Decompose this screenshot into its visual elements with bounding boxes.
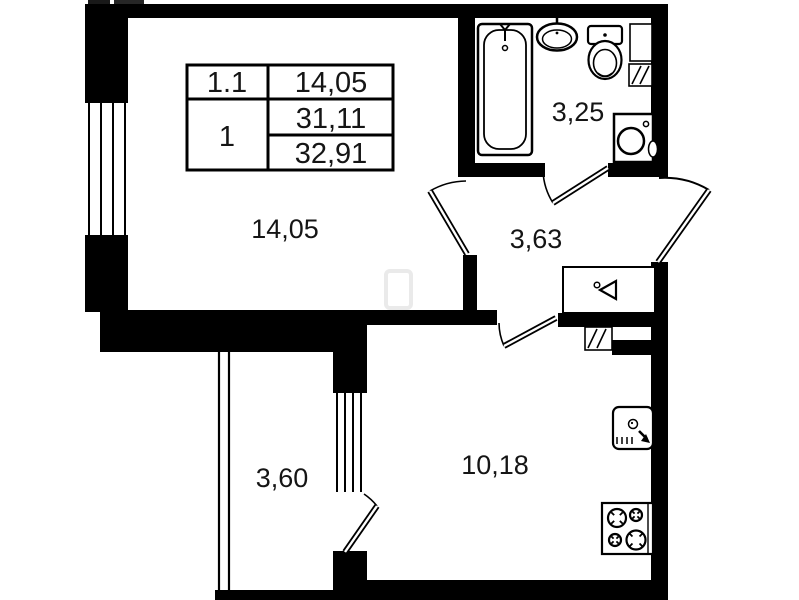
entrance-door (658, 178, 709, 262)
floor-plan-drawing: 1.1 14,05 1 31,11 32,91 14,05 3,25 3,63 … (0, 0, 799, 600)
wall-living-kitchen-partition (367, 310, 497, 325)
wall-bathroom-bottom-right (608, 163, 668, 177)
balcony-glazing-wall (219, 352, 229, 592)
duct-niche (630, 24, 652, 61)
balcony-door (345, 494, 377, 552)
room-label-hallway: 3,63 (510, 224, 563, 254)
wall-bottom-kitchen (333, 580, 668, 600)
wardrobe (563, 267, 655, 313)
wall-vent-corner (612, 340, 668, 355)
kitchen-door (499, 318, 556, 346)
wall-top (85, 4, 668, 18)
ventilation-shaft-bathroom (629, 64, 652, 86)
wall-bathroom-bottom-left (458, 163, 545, 177)
table-cell-apartment-number: 1 (219, 121, 235, 153)
room-label-living: 14,05 (251, 214, 319, 244)
toilet-icon (588, 26, 622, 79)
table-cell-unit-area: 14,05 (295, 67, 368, 99)
wall-top-cut-mark (114, 0, 144, 4)
living-room-window (85, 103, 128, 235)
washbasin-icon (537, 16, 577, 51)
wall-balcony-bottom (215, 590, 333, 600)
room-label-kitchen: 10,18 (461, 450, 529, 480)
bathtub-icon (478, 24, 532, 155)
burner-small-tr (629, 508, 643, 522)
wall-under-wardrobe (558, 313, 668, 327)
wall-bathroom-left (458, 4, 475, 177)
ventilation-shaft-hall (585, 327, 612, 350)
wall-bottom-living (100, 310, 367, 352)
burner-small-bl (608, 533, 622, 547)
wall-left-pier-lower (85, 235, 128, 312)
stove-icon (602, 503, 653, 554)
living-room-door (430, 181, 467, 254)
table-cell-living-area: 31,11 (296, 103, 366, 135)
wall-left-pier-upper (85, 4, 128, 103)
table-cell-unit-number: 1.1 (207, 67, 247, 99)
room-label-balcony: 3,60 (256, 463, 309, 493)
table-cell-total-area: 32,91 (295, 138, 368, 170)
watermark-ghost (386, 271, 411, 308)
floor-plan-canvas: 1.1 14,05 1 31,11 32,91 14,05 3,25 3,63 … (0, 0, 799, 600)
bathroom-door (543, 168, 608, 203)
room-label-bathroom: 3,25 (552, 97, 605, 127)
wall-balcony-pier-upper (333, 352, 367, 393)
washing-machine-icon (614, 114, 658, 162)
balcony-window (333, 393, 367, 492)
legend-table: 1.1 14,05 1 31,11 32,91 (187, 65, 393, 170)
wall-living-hall-stub (463, 255, 477, 312)
kitchen-sink-icon (613, 407, 653, 449)
